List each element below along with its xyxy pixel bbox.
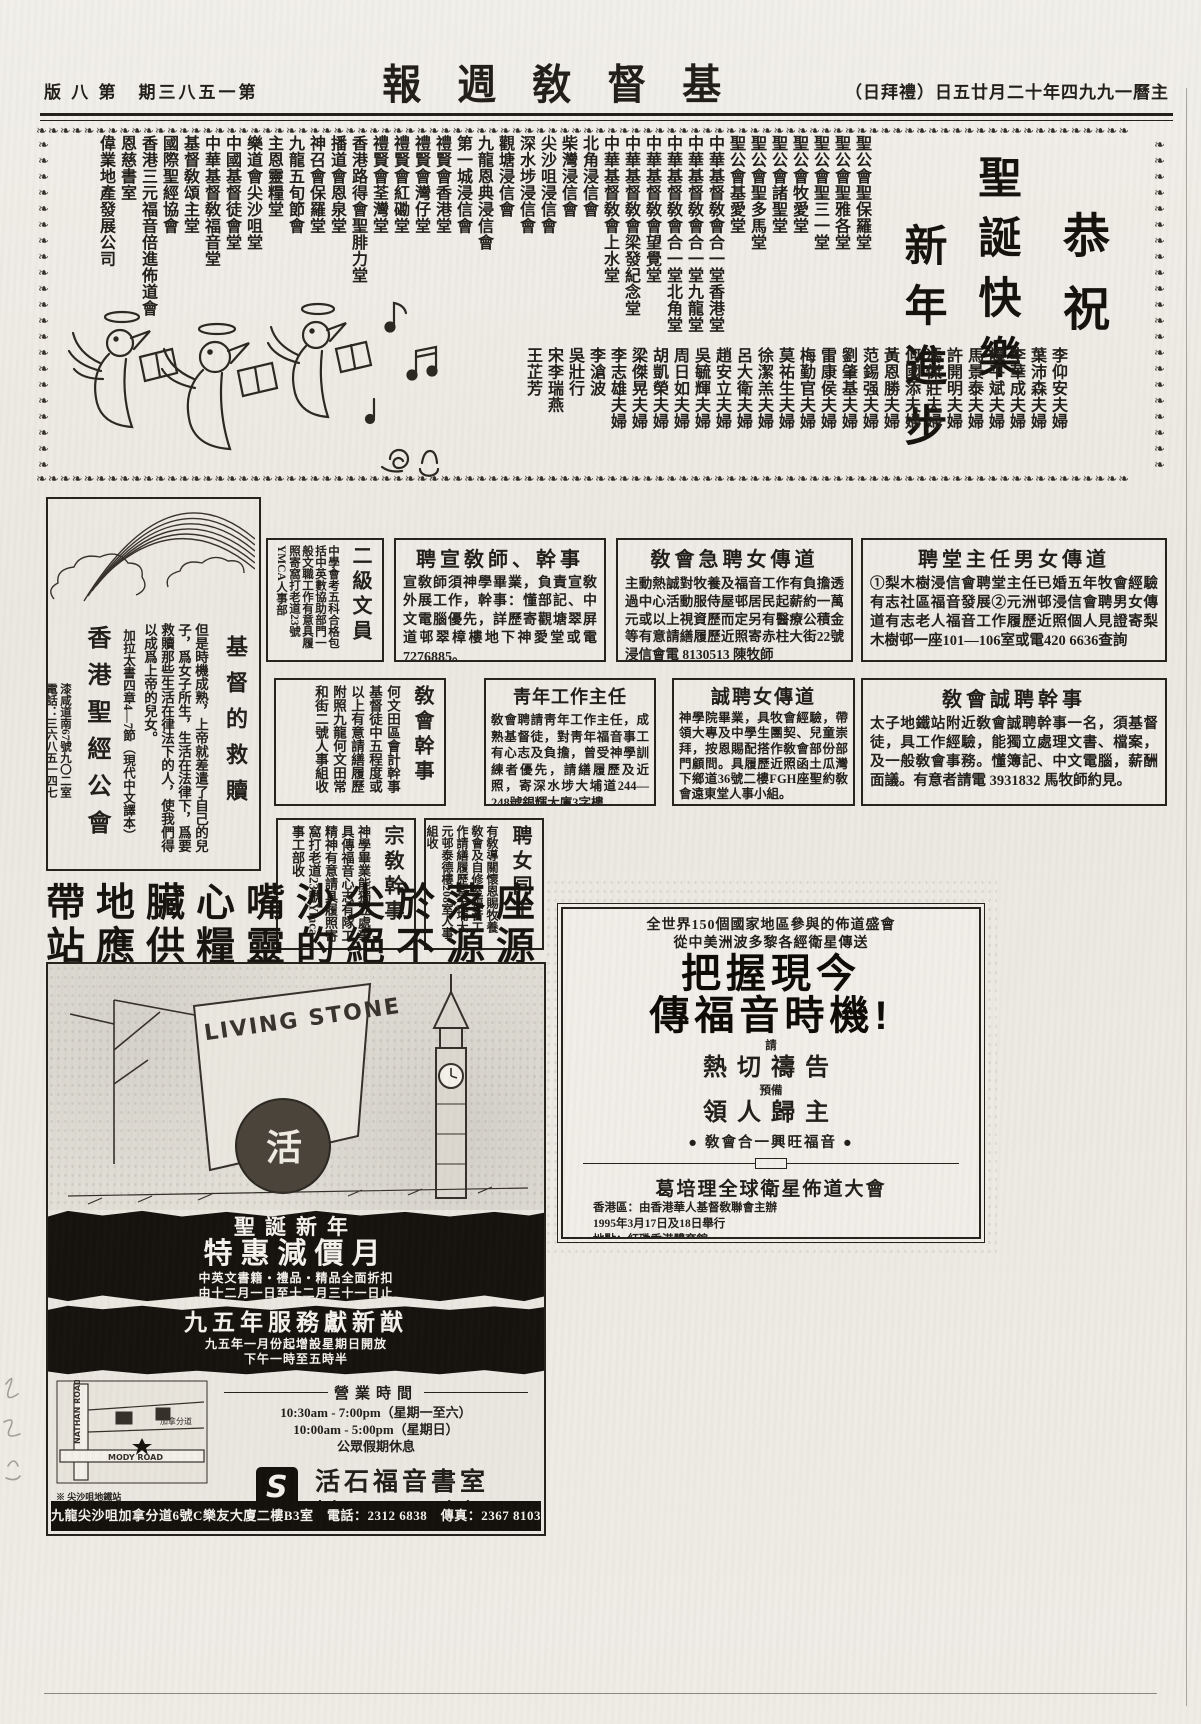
ad-body: 主動熱誠對牧養及福音工作有負擔透過中心活動服侍屋邨居民起薪約一萬元或以上視資歷而… (618, 575, 851, 662)
well-wisher-name: 周日如夫婦 (669, 347, 690, 475)
divider (583, 1158, 959, 1169)
ad-title: 二級文員 (346, 545, 375, 655)
crusade-intro-line2: 從中美洲波多黎各經衛星傳送 (577, 935, 965, 953)
church-name: 北角浸信會 (578, 135, 599, 357)
pencil-marks (0, 1370, 26, 1490)
ad-body: 敎會聘請靑年工作主任，成熟基督徒，對靑年福音事工有心志及負擔，曾受神學訓練者優先… (486, 712, 654, 806)
map-street-carnarvon: 加拿分道 (160, 1416, 192, 1426)
church-name: 中華基督敎會望覺堂 (641, 135, 662, 357)
ad-church-secretary: 敎會誠聘幹事 太子地鐵站附近敎會誠聘幹事一名，須基督徒，具工作經驗，能獨立處理文… (861, 678, 1167, 806)
church-name: 中華基督敎會上水堂 (599, 135, 620, 357)
well-wisher-name: 李滄波 (585, 347, 606, 475)
promo-line: 由十二月一日至十二月三十一日止 (48, 1286, 544, 1301)
rainbow-cloud-illustration (48, 501, 255, 623)
scripture-body: 但是時機成熟，上帝就差遣了自己的兒子，爲女子所生，生活在法律下，爲要救贖那些生活… (141, 623, 209, 861)
church-name: 九龍恩典浸信會 (473, 135, 494, 357)
bookshop-photo: LIVING STONE 活 (48, 964, 544, 1210)
promo-line: 九五年服務獻新猷 (48, 1309, 544, 1337)
crusade-ad: 全世界150個國家地區參與的佈道盛會 從中美洲波多黎各經衛星傳送 把握現今 傳福… (557, 903, 985, 1243)
bookshop-ad: LIVING STONE 活 聖誕新年 特惠減價月 中英文書籍・禮品・精品全面折… (46, 962, 546, 1536)
well-wisher-name: 莫祐生夫婦 (774, 347, 795, 475)
ad-body: ①梨木樹浸信會聘堂主任已婚五年牧會經驗有志社區福音發展②元洲邨浸信會聘男女傳道有… (863, 575, 1165, 656)
caroling-angels-illustration (60, 291, 450, 481)
well-wisher-name: 李仰安夫婦 (1047, 347, 1068, 475)
church-name: 第一城浸信會 (452, 135, 473, 357)
well-wisher-name: 梁傑晃夫婦 (627, 347, 648, 475)
bible-society-address: 漆咸道南67號九〇二室 (58, 623, 72, 871)
church-name: 聖公會諸聖堂 (767, 135, 788, 357)
ad-title: 誠聘女傳道 (674, 682, 853, 709)
greeting-salutation: 恭祝 (1047, 211, 1116, 357)
ad-title: 聘堂主任男女傳道 (863, 543, 1165, 572)
church-name: 中華基督敎會合一堂香港堂 (704, 135, 725, 357)
well-wisher-name: 譚平斌夫婦 (984, 347, 1005, 475)
hours-holiday: 公眾假期休息 (216, 1439, 536, 1456)
hours-sunday: 10:00am - 5:00pm（星期日） (216, 1422, 536, 1439)
promo-line: 下午一時至五時半 (48, 1352, 544, 1367)
well-wisher-name: 劉肇基夫婦 (837, 347, 858, 475)
church-name: 觀塘浸信會 (494, 135, 515, 357)
church-name: 中華基督敎會合一堂北角堂 (662, 135, 683, 357)
crusade-intro-line1: 全世界150個國家地區參與的佈道盛會 (577, 917, 965, 935)
crusade-lead-souls: 領人歸主 (577, 1099, 965, 1127)
crusade-headline-line2: 傳福音時機! (577, 995, 965, 1037)
promo-line: 聖誕新年 (48, 1215, 544, 1239)
bookshop-address-bar: 九龍尖沙咀加拿分道6號C樂友大廈二樓B3室 電話：2312 6838 傳真：23… (51, 1501, 541, 1531)
church-name: 中華基督敎會合一堂九龍堂 (683, 135, 704, 357)
ad-body: 太子地鐵站附近敎會誠聘幹事一名，須基督徒，具工作經驗，能獨立處理文書、檔案，及一… (863, 715, 1165, 796)
church-name: 聖公會聖三一堂 (809, 135, 830, 357)
ad-urgent-female-preacher: 敎會急聘女傳道 主動熱誠對牧養及福音工作有負擔透過中心活動服侍屋邨居民起薪約一萬… (616, 538, 853, 662)
well-wisher-name: 胡凱榮夫婦 (648, 347, 669, 475)
ad-title: 敎會急聘女傳道 (618, 543, 851, 572)
map-road-nathan: NATHAN ROAD (73, 1380, 82, 1444)
masthead-title: 報週敎督基 (382, 52, 757, 111)
header-rule (40, 113, 1173, 121)
ad-pastor-preachers: 聘堂主任男女傳道 ①梨木樹浸信會聘堂主任已婚五年牧會經驗有志社區福音發展②元洲邨… (861, 538, 1167, 662)
well-wisher-name: 梅勤官夫婦 (795, 347, 816, 475)
bible-society-name: 香港聖經公會 (79, 623, 114, 861)
well-wisher-name: 雷康侯夫婦 (816, 347, 837, 475)
ad-youth-work-director: 靑年工作主任 敎會聘請靑年工作主任，成熟基督徒，對靑年福音事工有心志及負擔，曾受… (484, 678, 656, 806)
ad-body: 宣敎師須神學畢業，負責宣敎外展工作，幹事：懂部記、中文電腦優先，詳歷寄觀塘翠屏道… (396, 575, 604, 662)
church-name: 聖公會聖雅各堂 (830, 135, 851, 357)
scan-edge-line (1186, 88, 1187, 1706)
well-wisher-name: 許開明夫婦 (942, 347, 963, 475)
scripture-verse-ref: 加拉太書四章4—7節（現代中文譯本） (120, 623, 136, 867)
ad-sincere-female-preacher: 誠聘女傳道 神學院畢業，具牧會經驗，帶領大專及中學生團契、兒童崇拜，按恩賜配搭作… (672, 678, 855, 806)
well-wisher-name: 李華成夫婦 (1005, 347, 1026, 475)
ad-body: 神學院畢業，具牧會經驗，帶領大專及中學生團契、兒童崇拜，按恩賜配搭作敎會部份部門… (674, 711, 853, 806)
crusade-prepare: 預備 (577, 1085, 965, 1099)
church-name: 聖公會聖保羅堂 (851, 135, 872, 357)
map-road-mody: MODY ROAD (108, 1453, 163, 1462)
promo-line: 特惠減價月 (48, 1239, 544, 1271)
church-name: 中華基督敎會梁發紀念堂 (620, 135, 641, 357)
crusade-organizer: 香港區：由香港華人基督敎聯會主辦 (577, 1201, 965, 1217)
church-name: 聖公會牧愛堂 (788, 135, 809, 357)
ad-title: 敎會誠聘幹事 (863, 683, 1165, 712)
ad-clerk-grade2: 二級文員 中學會考五科合格包括中英數協助部門一般文職工作有意具履照寄窩打老道23… (266, 538, 384, 662)
scripture-title: 基督的救贖 (219, 623, 251, 861)
well-wisher-name: 何國添夫婦 (900, 347, 921, 475)
well-wisher-name: 吳壯行 (564, 347, 585, 475)
crusade-please: 請 (577, 1040, 965, 1054)
well-wisher-name: 宋李瑞燕 (543, 347, 564, 475)
christmas-greeting-box: ❧❧❧❧❧❧❧❧❧❧❧❧❧❧❧❧❧❧❧❧❧❧❧❧❧❧❧❧❧❧❧❧❧❧❧❧❧❧❧❧… (36, 123, 1168, 487)
crusade-date: 1995年3月17日及18日舉行 (577, 1217, 965, 1233)
church-name: 尖沙咀浸信會 (536, 135, 557, 357)
sphere-glyph: 活 (266, 1128, 302, 1168)
well-wisher-name: 馬景泰夫婦 (963, 347, 984, 475)
bible-society-phone: 電話：三六八五一四七 (46, 623, 58, 871)
location-map: NATHAN ROAD MODY ROAD 加拿分道 ※ 尖沙咀地鐵站 (56, 1380, 208, 1515)
well-wisher-name: 吳毓輝夫婦 (690, 347, 711, 475)
church-name: 聖公會基愛堂 (725, 135, 746, 357)
floral-border-right: ❧❧❧❧❧❧❧❧❧❧❧❧❧❧❧❧❧❧❧❧❧❧❧❧❧❧ (1152, 138, 1168, 472)
shop-name-chinese: 活石福音書室 (308, 1462, 497, 1498)
ad-missioner-clerk: 聘宣敎師、幹事 宣敎師須神學畢業，負責宣敎外展工作，幹事：懂部記、中文電腦優先，… (394, 538, 606, 662)
hours-title: 營業時間 (334, 1382, 418, 1403)
well-wisher-name: 趙安立夫婦 (711, 347, 732, 475)
well-wisher-name: 呂大衛夫婦 (732, 347, 753, 475)
promo-line: 中英文書籍・禮品・精品全面折扣 (48, 1271, 544, 1286)
church-name: 柴灣浸信會 (557, 135, 578, 357)
well-wisher-name: 葉沛森夫婦 (1026, 347, 1047, 475)
ad-title: 敎會幹事 (408, 685, 437, 799)
header: 版 八 第 期三八五一第 報週敎督基 （日拜禮）日五廿月二十年四九九一曆主 (44, 56, 1169, 110)
promo-band-1995-service: 九五年服務獻新猷 九五年一月份起增設星期日開放 下午一時至五時半 (48, 1305, 544, 1375)
newspaper-page: 版 八 第 期三八五一第 報週敎督基 （日拜禮）日五廿月二十年四九九一曆主 ❧❧… (0, 0, 1201, 1724)
page-number-issue: 版 八 第 期三八五一第 (44, 78, 259, 110)
scripture-text: 基督的救贖 但是時機成熟，上帝就差遣了自己的兒子，爲女子所生，生活在法律下，爲要… (53, 623, 251, 861)
crusade-headline-line1: 把握現今 (577, 953, 965, 995)
well-wisher-list: 李仰安夫婦葉沛森夫婦李華成夫婦譚平斌夫婦馬景泰夫婦許開明夫婦馮傑莊夫婦何國添夫婦… (504, 347, 1068, 475)
bible-society-box: 基督的救贖 但是時機成熟，上帝就差遣了自己的兒子，爲女子所生，生活在法律下，爲要… (46, 497, 261, 871)
church-name: 深水埗浸信會 (515, 135, 536, 357)
ad-title: 聘宣敎師、幹事 (396, 543, 604, 572)
floral-border-left: ❧❧❧❧❧❧❧❧❧❧❧❧❧❧❧❧❧❧❧❧❧❧❧❧❧❧ (36, 138, 52, 472)
crusade-event-name: 葛培理全球衛星佈道大會 (577, 1174, 965, 1201)
well-wisher-name: 黃恩勝夫婦 (879, 347, 900, 475)
church-name: 聖公會聖多馬堂 (746, 135, 767, 357)
well-wisher-name: 李志雄夫婦 (606, 347, 627, 475)
hours-weekday: 10:30am - 7:00pm（星期一至六） (216, 1405, 536, 1422)
crusade-pray: 熱切禱告 (577, 1054, 965, 1082)
well-wisher-name: 馮傑莊夫婦 (921, 347, 942, 475)
promo-line: 九五年一月份起增設星期日開放 (48, 1337, 544, 1352)
crusade-slogan: ● 敎會合一興旺福音 ● (577, 1131, 965, 1152)
issue-date: （日拜禮）日五廿月二十年四九九一曆主 (845, 78, 1169, 110)
ad-title: 靑年工作主任 (486, 683, 654, 709)
ad-body: 何文田區會計幹事基督徒中五程度或以上有意請繕履歷附照九龍何文田常和街二號人事組收 (311, 685, 401, 799)
ad-body: 中學會考五科合格包括中英數協助部門一般文職工作有意具履照寄窩打老道23號YMCA… (274, 545, 339, 655)
well-wisher-name: 王芷芳 (522, 347, 543, 475)
crusade-venue: 地點：紅磡香港體育館 (577, 1233, 965, 1239)
well-wisher-name: 范錫强夫婦 (858, 347, 879, 475)
well-wisher-name: 徐潔羔夫婦 (753, 347, 774, 475)
ad-church-accounting-clerk: 敎會幹事 何文田區會計幹事基督徒中五程度或以上有意請繕履歷附照九龍何文田常和街二… (274, 678, 446, 806)
bottom-rule (44, 1693, 1157, 1694)
promo-band-christmas-sale: 聖誕新年 特惠減價月 中英文書籍・禮品・精品全面折扣 由十二月一日至十二月三十一… (48, 1210, 544, 1302)
